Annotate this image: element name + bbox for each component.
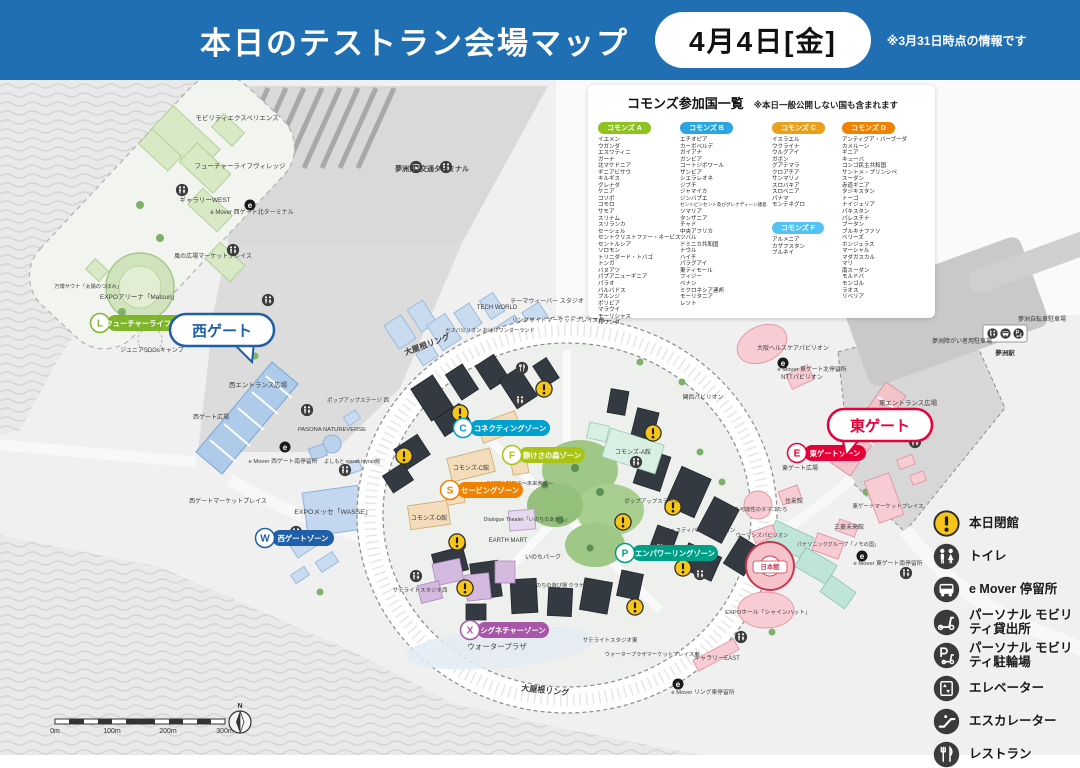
map-label: テーマウィーバー スタジオ [510, 297, 584, 305]
svg-text:P: P [622, 549, 629, 560]
map-label: EXPOアリーナ「Matsuri」 [100, 293, 178, 301]
commons-column-c-f: コモンズ C イスラエルウクライナウルグアイガボングアテマラクロアチアサンマリノ… [772, 117, 838, 327]
page-title: 本日のテストラン会場マップ [200, 18, 629, 63]
map-label: コモンズ-A館 [615, 448, 651, 456]
emover-stop-icon: e [280, 442, 291, 453]
map-label: コモンズ-D館 [411, 514, 447, 522]
svg-text:C: C [459, 424, 466, 435]
toilet-icon [735, 631, 747, 643]
toilet-icon [630, 456, 642, 468]
map-label: ガスパビリオン おばけワンダーランド [445, 326, 535, 334]
map-label: 東ゲート広場 [782, 464, 818, 472]
svg-text:静けさの森ゾーン: 静けさの森ゾーン [523, 451, 581, 460]
svg-text:シグネチャーゾーン: シグネチャーゾーン [480, 626, 545, 635]
map-label: 日本館 [761, 562, 780, 571]
map-label: 夢洲駅 [995, 348, 1015, 357]
commons-d-badge: コモンズ D [842, 122, 895, 134]
map-label: 夢洲第1交通ターミナル [395, 164, 469, 173]
svg-text:コネクティングゾーン: コネクティングゾーン [474, 424, 546, 433]
svg-text:E: E [794, 449, 801, 460]
legend-item-mobility-rental: パーソナル モビリティ貸出所 [933, 609, 1080, 636]
emover-stop-icon: e [857, 551, 868, 562]
svg-text:N: N [237, 703, 242, 710]
map-label: 三菱未来館 [834, 523, 864, 531]
map-label: NTTパビリオン [781, 373, 823, 381]
map-label: ギャラリーWEST [179, 196, 230, 204]
map-label: e Mover 東ゲート南停留所 [854, 559, 923, 567]
emover-stop-icon: e [245, 200, 256, 211]
svg-text:100m: 100m [103, 728, 121, 735]
closed-today-icon [627, 599, 643, 615]
map-label: EARTH MART [489, 538, 528, 544]
svg-text:200m: 200m [159, 728, 177, 735]
map-label: ポップアップステージ 西 [327, 397, 389, 404]
zone-pill-P: P エンパワーリングゾーン [616, 544, 719, 563]
zone-pill-W: W 西ゲートゾーン [256, 529, 335, 548]
country-item: レソト [680, 301, 768, 308]
escalator-icon [933, 708, 960, 735]
legend-item-escalator: エスカレーター [933, 708, 1080, 735]
zone-pill-S: S セービングゾーン [441, 481, 524, 500]
map-label: 大阪ヘルスケアパビリオン [757, 344, 829, 352]
emover-stop-icon: e [673, 679, 684, 690]
commons-panel-note: ※本日一般公開しない国も含まれます [754, 99, 898, 111]
map-label: ウォータープラザマーケットプレイス東 [605, 650, 701, 658]
map-label: 電力館 可能性のタマゴたち [722, 505, 787, 513]
map-label: よしもと waraii myraii館 [324, 457, 380, 465]
toilet-icon [933, 543, 960, 570]
map-label: いのちパーク [525, 554, 561, 561]
personal-mobility-icon [933, 609, 960, 636]
map-label: パナソニックグループ「ノモの国」 [797, 540, 879, 548]
map-label: e Mover リング東停留所 [671, 688, 734, 696]
bus-icon [933, 576, 960, 603]
commons-column-b: コモンズ B エチオピアカーボベルデガイアナガンビアコートジボワールザンビアシエ… [680, 117, 768, 327]
date-badge: 4月4日[金] [655, 12, 871, 68]
commons-country-panel: コモンズ参加国一覧 ※本日一般公開しない国も含まれます コモンズ A イエメンウ… [588, 85, 935, 318]
country-item: ルワンダ [598, 320, 676, 327]
map-label: 夢洲自転車駐車場 [1018, 315, 1066, 323]
closed-today-icon [675, 560, 691, 576]
map-label: 西ゲート広場 [193, 413, 229, 421]
map-label: ギャラリーEAST [694, 655, 740, 662]
svg-text:X: X [467, 626, 474, 637]
map-label: e Mover 西ゲート南停留所 [249, 457, 318, 465]
map-label: e Mover 東ゲート北停留所 [778, 365, 847, 373]
svg-text:F: F [509, 451, 515, 462]
svg-text:東ゲートゾーン: 東ゲートゾーン [810, 449, 861, 458]
map-label: 風の広場マーケットプレイス [174, 252, 252, 260]
toilet-icon [514, 394, 526, 406]
closed-today-icon [933, 510, 960, 537]
legend-item-toilet: トイレ [933, 543, 1080, 570]
map-label: 万博サウナ「太陽のつぼみ」 [54, 282, 121, 290]
legend-item-closed: 本日閉館 [933, 510, 1080, 537]
commons-c-badge: コモンズ C [772, 122, 825, 134]
legend-item-emover: e Mover 停留所 [933, 576, 1080, 603]
country-item: リベリア [842, 294, 924, 301]
map-label: サテライトスタジオ東 [582, 636, 638, 644]
svg-text:e: e [248, 201, 253, 210]
map-label: ポップアップステージ 場内 [624, 497, 691, 505]
toilet-icon [301, 404, 313, 416]
zone-pill-X: X シグネチャーゾーン [461, 621, 550, 640]
map-label: Dialogue Theater「いのちのあかし」 [484, 516, 570, 523]
closed-today-icon [396, 448, 412, 464]
map-label: e Mover 西ゲート北ターミナル [210, 208, 293, 216]
toilet-icon [176, 184, 188, 196]
svg-text:西ゲート: 西ゲート [192, 322, 252, 340]
mobility-parking-icon [933, 642, 960, 669]
map-label: コモンズ-C館 [453, 464, 489, 472]
map-label: PASONA NATUREVERSE [298, 427, 366, 433]
svg-text:W: W [260, 534, 270, 545]
map-label: 西エントランス広場 [229, 380, 288, 389]
closed-today-icon [615, 514, 631, 530]
commons-b-badge: コモンズ B [680, 122, 733, 134]
map-label: EXPOメッセ「WASSE」 [294, 508, 371, 516]
map-label: ウーマンズパビリオン [736, 531, 789, 539]
toilet-icon [410, 570, 422, 582]
svg-text:S: S [447, 486, 454, 497]
commons-column-d: コモンズ D アンティグア・バーブーダカメルーンギニアキューバコンゴ民主共和国サ… [842, 117, 924, 327]
toilet-icon [900, 567, 912, 579]
map-label: フェスティバルステーション [664, 527, 736, 534]
map-label: いのちの遊び場 クラゲ館 [531, 581, 590, 589]
map-label: モビリティエクスペリエンス [195, 113, 278, 122]
closed-today-icon [457, 580, 473, 596]
map-label: フューチャーライフヴィレッジ [195, 161, 286, 170]
zone-pill-F: F 静けさの森ゾーン [503, 446, 586, 465]
toilet-icon [339, 464, 351, 476]
map-label: TECH WORLD [477, 305, 518, 311]
map-label: 夢洲障がい者用駐車場 [932, 337, 992, 345]
svg-text:e: e [676, 680, 681, 689]
svg-text:東ゲート: 東ゲート [850, 417, 910, 435]
header-bar: 本日のテストラン会場マップ 4月4日[金] ※3月31日時点の情報です [0, 0, 1080, 80]
commons-a-badge: コモンズ A [598, 122, 651, 134]
svg-text:西ゲートゾーン: 西ゲートゾーン [278, 534, 329, 543]
map-label: 関西パビリオン [683, 393, 724, 401]
commons-panel-title: コモンズ参加国一覧 [627, 93, 744, 112]
map-label: ウォータープラザ [467, 642, 527, 651]
commons-f-badge: コモンズ F [772, 222, 824, 234]
rest-icon [516, 362, 528, 374]
svg-text:e: e [860, 552, 865, 561]
svg-text:0m: 0m [50, 728, 60, 735]
map-label: 西ゲートマーケットプレイス [189, 497, 267, 505]
map-label: 東ゲートマーケットプレイス [852, 502, 923, 510]
svg-text:エンパワーリングゾーン: エンパワーリングゾーン [635, 549, 715, 558]
map-label: ジュニアSDGsキャンプ [120, 347, 183, 354]
zone-pill-C: C コネクティングゾーン [454, 419, 551, 438]
map-label: 東エントランス広場 [879, 398, 938, 407]
map-label: EXPOホール「シャインハット」 [725, 609, 811, 616]
closed-today-icon [645, 425, 661, 441]
svg-text:e: e [283, 443, 288, 452]
closed-today-icon [536, 381, 552, 397]
elevator-icon [933, 675, 960, 702]
closed-today-icon [449, 534, 465, 550]
svg-text:セービングゾーン: セービングゾーン [461, 486, 519, 495]
header-note: ※3月31日時点の情報です [887, 32, 1027, 49]
legend-item-mobility-parking: パーソナル モビリティ駐輪場 [933, 642, 1080, 669]
country-item: ブルネイ [772, 250, 838, 257]
toilet-icon [694, 568, 706, 580]
svg-text:L: L [97, 319, 103, 330]
map-label: サテライトスタジオ西 [392, 586, 448, 594]
legend-item-elevator: エレベーター [933, 675, 1080, 702]
country-item: セントクリストファー・ネービス [598, 235, 676, 242]
map-legend: 本日閉館 トイレ e Mover 停留所 パーソナル モビリティ貸出所 パーソナ… [933, 510, 1080, 768]
commons-column-a: コモンズ A イエメンウガンダエスワティニガーナ北マケドニアギニアビサウキルギス… [598, 117, 676, 327]
toilet-icon [262, 294, 274, 306]
map-label: 住友館 [785, 497, 803, 505]
